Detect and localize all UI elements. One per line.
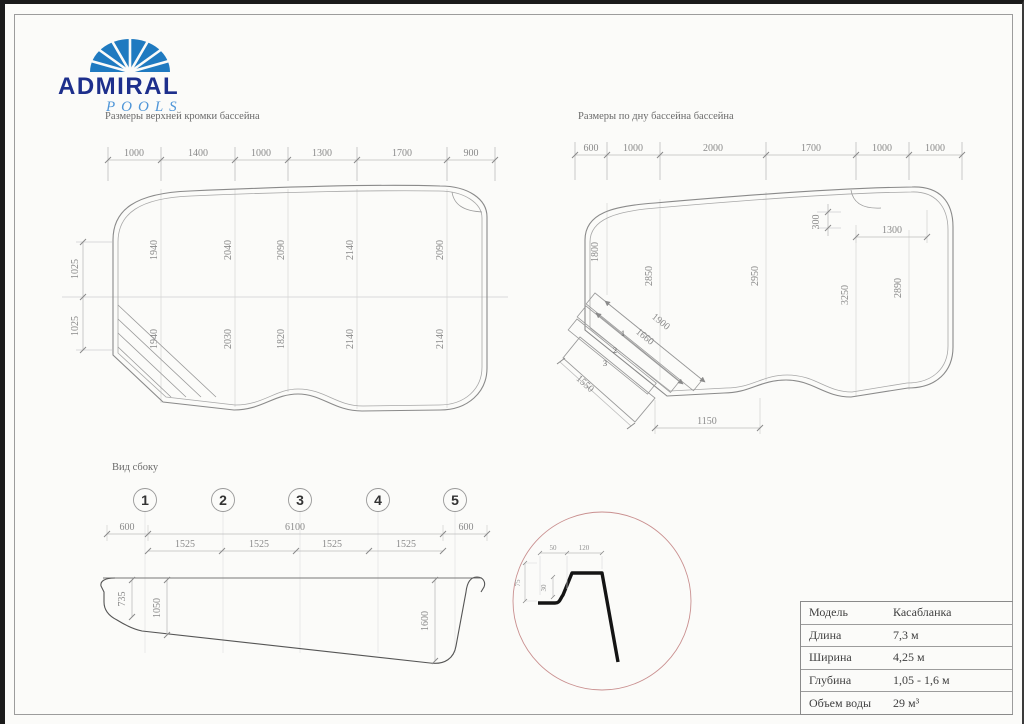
dim-label: 120	[579, 544, 590, 552]
spec-label: Модель	[801, 605, 893, 620]
side-view-title: Вид сбоку	[112, 462, 159, 473]
fan-logo-icon	[86, 36, 174, 74]
dim-label: 735	[117, 592, 128, 607]
spec-label: Объем воды	[801, 696, 893, 711]
dim-label: 2890	[893, 278, 904, 298]
section-lines	[161, 189, 447, 409]
dim-label: 600	[459, 522, 474, 533]
top-plan-left-dims: 1025 1025	[70, 239, 112, 353]
dim-label: 50	[550, 544, 558, 552]
dim-label: 1300	[882, 225, 902, 236]
side-view-drawing: Вид сбоку 1 2 3 4 5 600 6100 600 1525 15…	[95, 455, 515, 695]
dim-label: 600	[120, 522, 135, 533]
dim-label: 30	[540, 584, 548, 592]
bottom-plan-section-dims: 1800 2850 2950 3250 2890	[590, 242, 904, 305]
dim-label: 1000	[251, 148, 271, 159]
dim-label: 6100	[285, 522, 305, 533]
dim-label: 2140	[345, 329, 356, 349]
step-number: 1	[621, 328, 625, 338]
spec-value: 7,3 м	[893, 628, 1013, 643]
dim-label: 1025	[70, 259, 81, 279]
dim-label: 1300	[312, 148, 332, 159]
dim-label: 1700	[801, 143, 821, 154]
drawing-sheet: ADMIRAL POOLS Размеры верхней кромки бас…	[0, 0, 1024, 724]
dim-label: 2030	[223, 329, 234, 349]
table-row: Ширина 4,25 м	[801, 647, 1013, 670]
spec-table: Модель Касабланка Длина 7,3 м Ширина 4,2…	[800, 601, 1013, 715]
spec-value: Касабланка	[893, 605, 1013, 620]
table-row: Длина 7,3 м	[801, 625, 1013, 648]
spec-label: Ширина	[801, 650, 893, 665]
dim-label: 1525	[322, 539, 342, 550]
admiral-pools-logo: ADMIRAL POOLS	[58, 36, 258, 116]
section-marker-5: 5	[451, 492, 459, 508]
top-plan-dim-lines	[108, 147, 495, 181]
bottom-plan-width-labels: 600 1000 2000 1700 1000 1000	[584, 143, 946, 154]
rim-profile	[538, 573, 618, 662]
section-marker-1: 1	[141, 492, 149, 508]
dim-label: 1000	[124, 148, 144, 159]
dim-label: 1700	[392, 148, 412, 159]
table-row: Модель Касабланка	[801, 602, 1013, 625]
dim-label: 1940	[149, 240, 160, 260]
corner-stairs-lines	[118, 305, 216, 397]
dim-label: 2090	[435, 240, 446, 260]
dim-label: 300	[811, 215, 822, 230]
dim-label: 1940	[149, 329, 160, 349]
dim-label: 1820	[276, 329, 287, 349]
dim-label: 75	[514, 579, 522, 587]
side-view-dims: 600 6100 600 1525 1525 1525 1525	[104, 522, 490, 554]
top-plan-title: Размеры верхней кромки бассейна	[105, 111, 260, 122]
dim-label: 1900	[649, 311, 671, 332]
dim-label: 2090	[276, 240, 287, 260]
dim-label: 1000	[925, 143, 945, 154]
dim-label: 1525	[175, 539, 195, 550]
spec-value: 1,05 - 1,6 м	[893, 673, 1013, 688]
dim-label: 1000	[623, 143, 643, 154]
dim-label: 2950	[750, 266, 761, 286]
dim-label: 2040	[223, 240, 234, 260]
logo-wordmark: ADMIRAL	[58, 74, 258, 99]
dim-label: 2140	[435, 329, 446, 349]
section-marker-2: 2	[219, 492, 227, 508]
top-edge-plan-drawing: Размеры верхней кромки бассейна 1000 140…	[60, 105, 510, 430]
dim-label: 1400	[188, 148, 208, 159]
dim-label: 1000	[872, 143, 892, 154]
dim-label: 1050	[152, 598, 163, 618]
dim-label: 600	[584, 143, 599, 154]
step-number: 3	[603, 358, 607, 368]
dim-label: 1525	[396, 539, 416, 550]
detail-circle	[513, 512, 691, 690]
dim-label: 1150	[697, 416, 717, 427]
depth-dims: 735 1050 1600	[117, 577, 438, 664]
section-marker-3: 3	[296, 492, 304, 508]
dim-label: 2140	[345, 240, 356, 260]
spec-label: Глубина	[801, 673, 893, 688]
dim-label: 900	[464, 148, 479, 159]
table-row: Объем воды 29 м³	[801, 692, 1013, 714]
pool-outline-bottom-plan	[563, 187, 953, 422]
misc-dims: 300 1300 1150	[652, 204, 930, 434]
section-guides	[145, 512, 455, 653]
dim-label: 1600	[420, 611, 431, 631]
bottom-plan-drawing: Размеры по дну бассейна бассейна 600 100…	[555, 100, 1015, 455]
entry-notch	[452, 192, 482, 212]
dim-label: 3250	[840, 285, 851, 305]
spec-value: 4,25 м	[893, 650, 1013, 665]
stair-dims: 1900 1660 1550 1 2 3	[557, 301, 705, 429]
pool-outline-top-plan	[113, 185, 487, 411]
top-plan-section-dims: 1940 2040 2090 2140 2090 1940 2030 1820 …	[149, 240, 446, 349]
dim-label: 1025	[70, 316, 81, 336]
dim-label: 2850	[644, 266, 655, 286]
table-row: Глубина 1,05 - 1,6 м	[801, 670, 1013, 693]
top-plan-width-labels: 1000 1400 1000 1300 1700 900	[124, 148, 479, 159]
step-number: 2	[613, 345, 617, 355]
dim-label: 2000	[703, 143, 723, 154]
bottom-plan-title: Размеры по дну бассейна бассейна	[578, 111, 734, 122]
dim-label: 1525	[249, 539, 269, 550]
dim-label: 1800	[590, 242, 601, 262]
rim-detail-drawing: 50 120 30 75	[505, 503, 705, 703]
section-markers: 1 2 3 4 5	[134, 489, 467, 512]
spec-value: 29 м³	[893, 696, 1013, 711]
section-marker-4: 4	[374, 492, 382, 508]
section-lines	[607, 192, 909, 397]
spec-label: Длина	[801, 628, 893, 643]
